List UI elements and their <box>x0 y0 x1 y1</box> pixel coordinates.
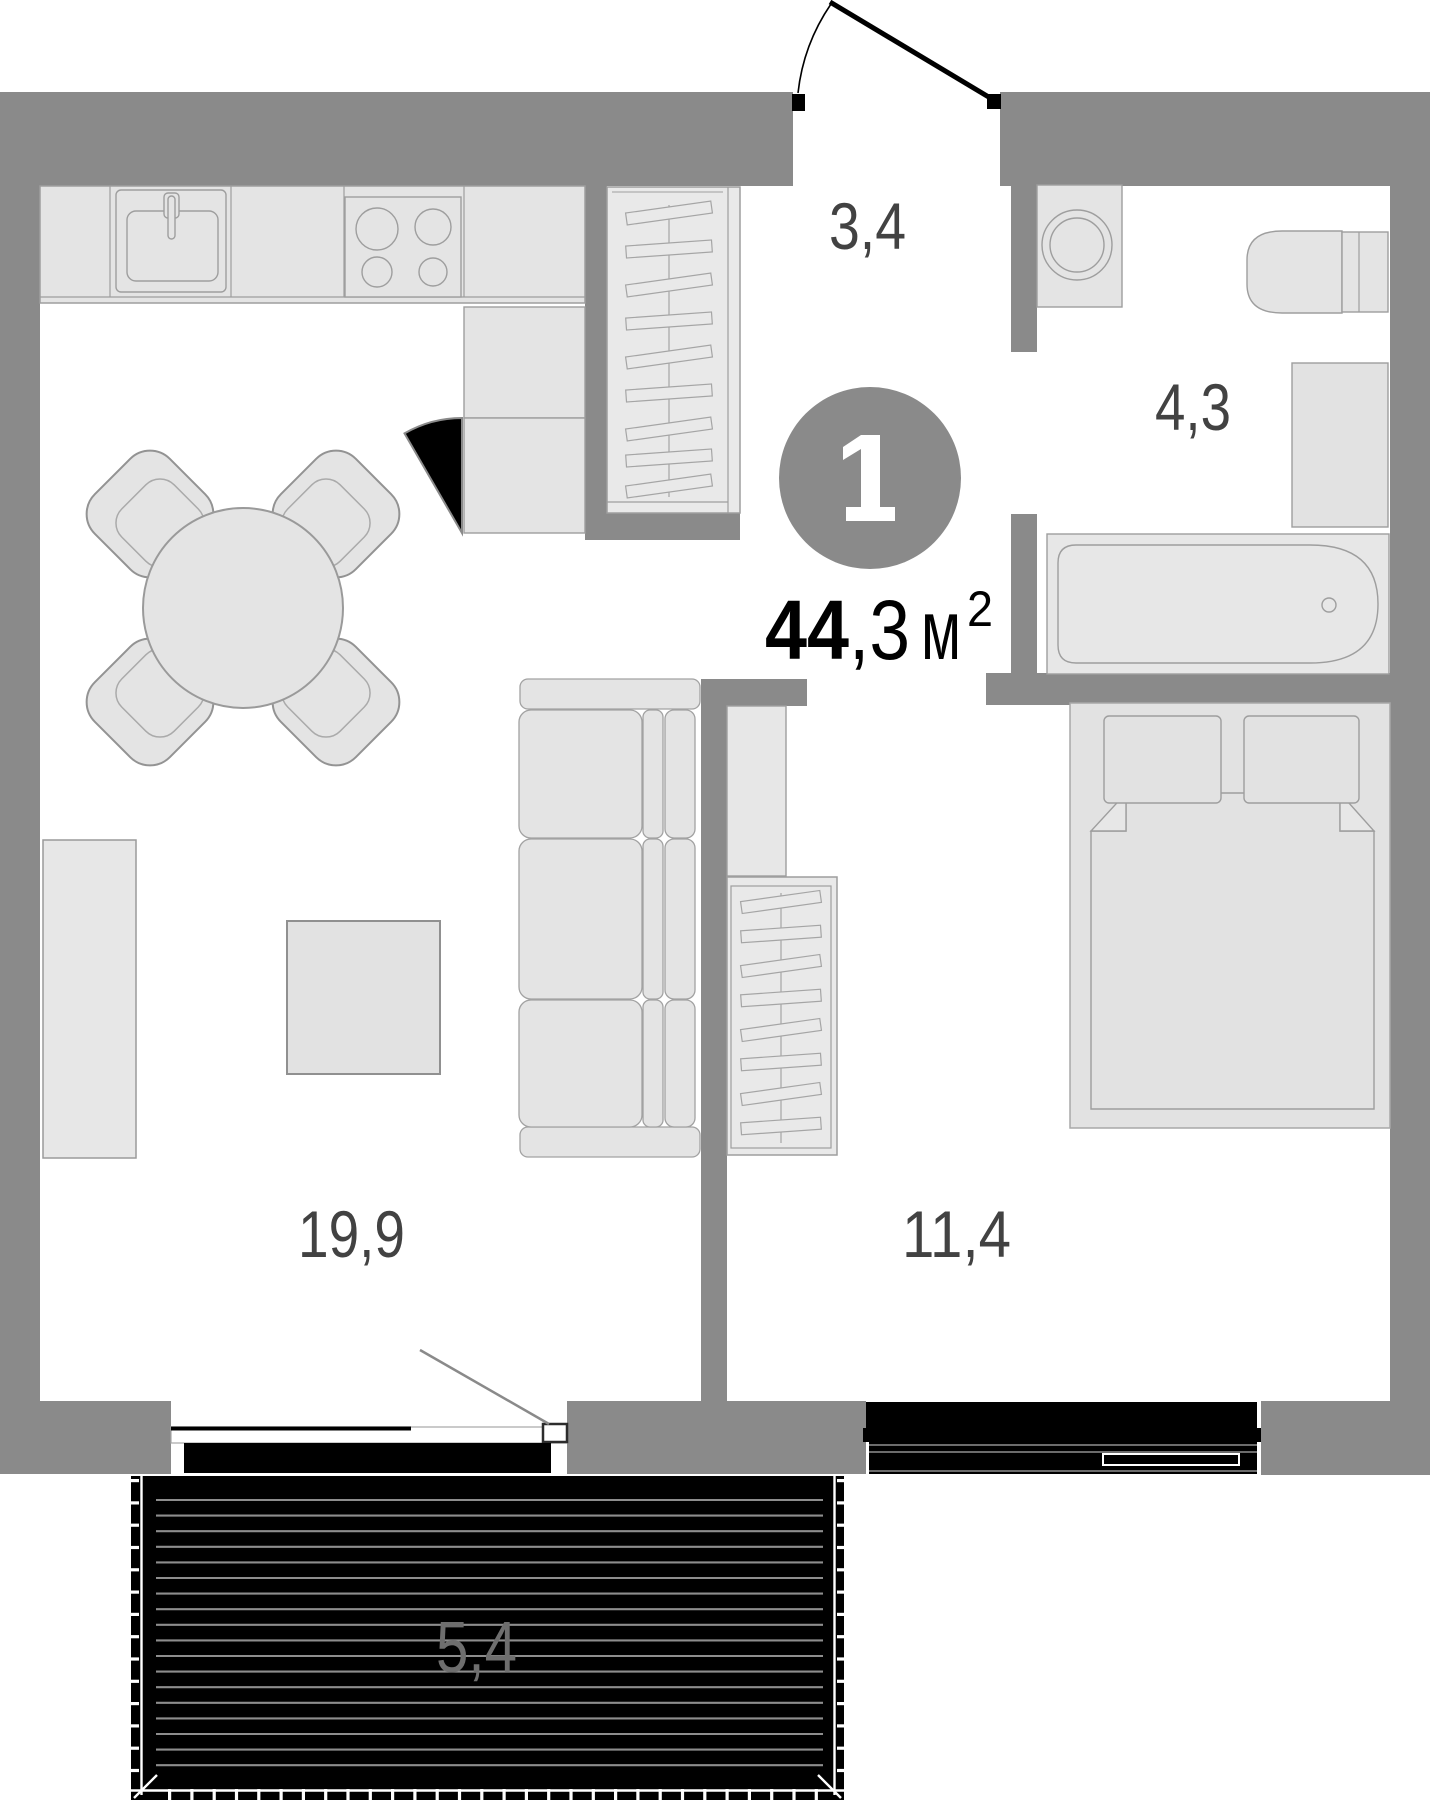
svg-text:44: 44 <box>765 583 849 677</box>
svg-text:5,4: 5,4 <box>436 1608 517 1688</box>
svg-text:2: 2 <box>967 581 993 637</box>
svg-text:19,9: 19,9 <box>298 1197 405 1271</box>
svg-text:3,4: 3,4 <box>829 189 906 263</box>
svg-text:м: м <box>921 583 961 677</box>
svg-text:4,3: 4,3 <box>1155 370 1231 444</box>
svg-text:,3: ,3 <box>849 583 910 677</box>
svg-text:11,4: 11,4 <box>902 1197 1011 1271</box>
